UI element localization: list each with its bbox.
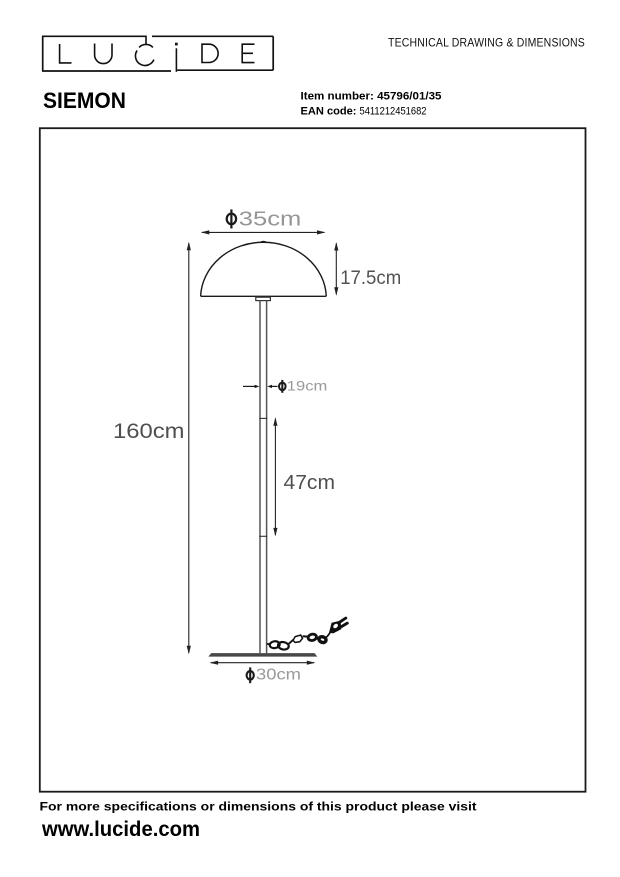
svg-text:17.5cm: 17.5cm (340, 268, 401, 289)
svg-text:Item number: 45796/01/35: Item number: 45796/01/35 (301, 90, 442, 102)
svg-text:For more specifications or dim: For more specifications or dimensions of… (40, 800, 477, 814)
svg-text:TECHNICAL DRAWING & DIMENSIONS: TECHNICAL DRAWING & DIMENSIONS (388, 36, 585, 50)
svg-text:30cm: 30cm (256, 666, 301, 683)
svg-text:www.lucide.com: www.lucide.com (41, 817, 200, 841)
svg-text:35cm: 35cm (239, 207, 302, 230)
svg-text:EAN code:5411212451682: EAN code:5411212451682 (301, 106, 427, 118)
svg-text:47cm: 47cm (284, 471, 336, 494)
svg-text:160cm: 160cm (113, 420, 185, 443)
svg-text:19cm: 19cm (287, 377, 328, 393)
svg-text:SIEMON: SIEMON (43, 88, 126, 113)
